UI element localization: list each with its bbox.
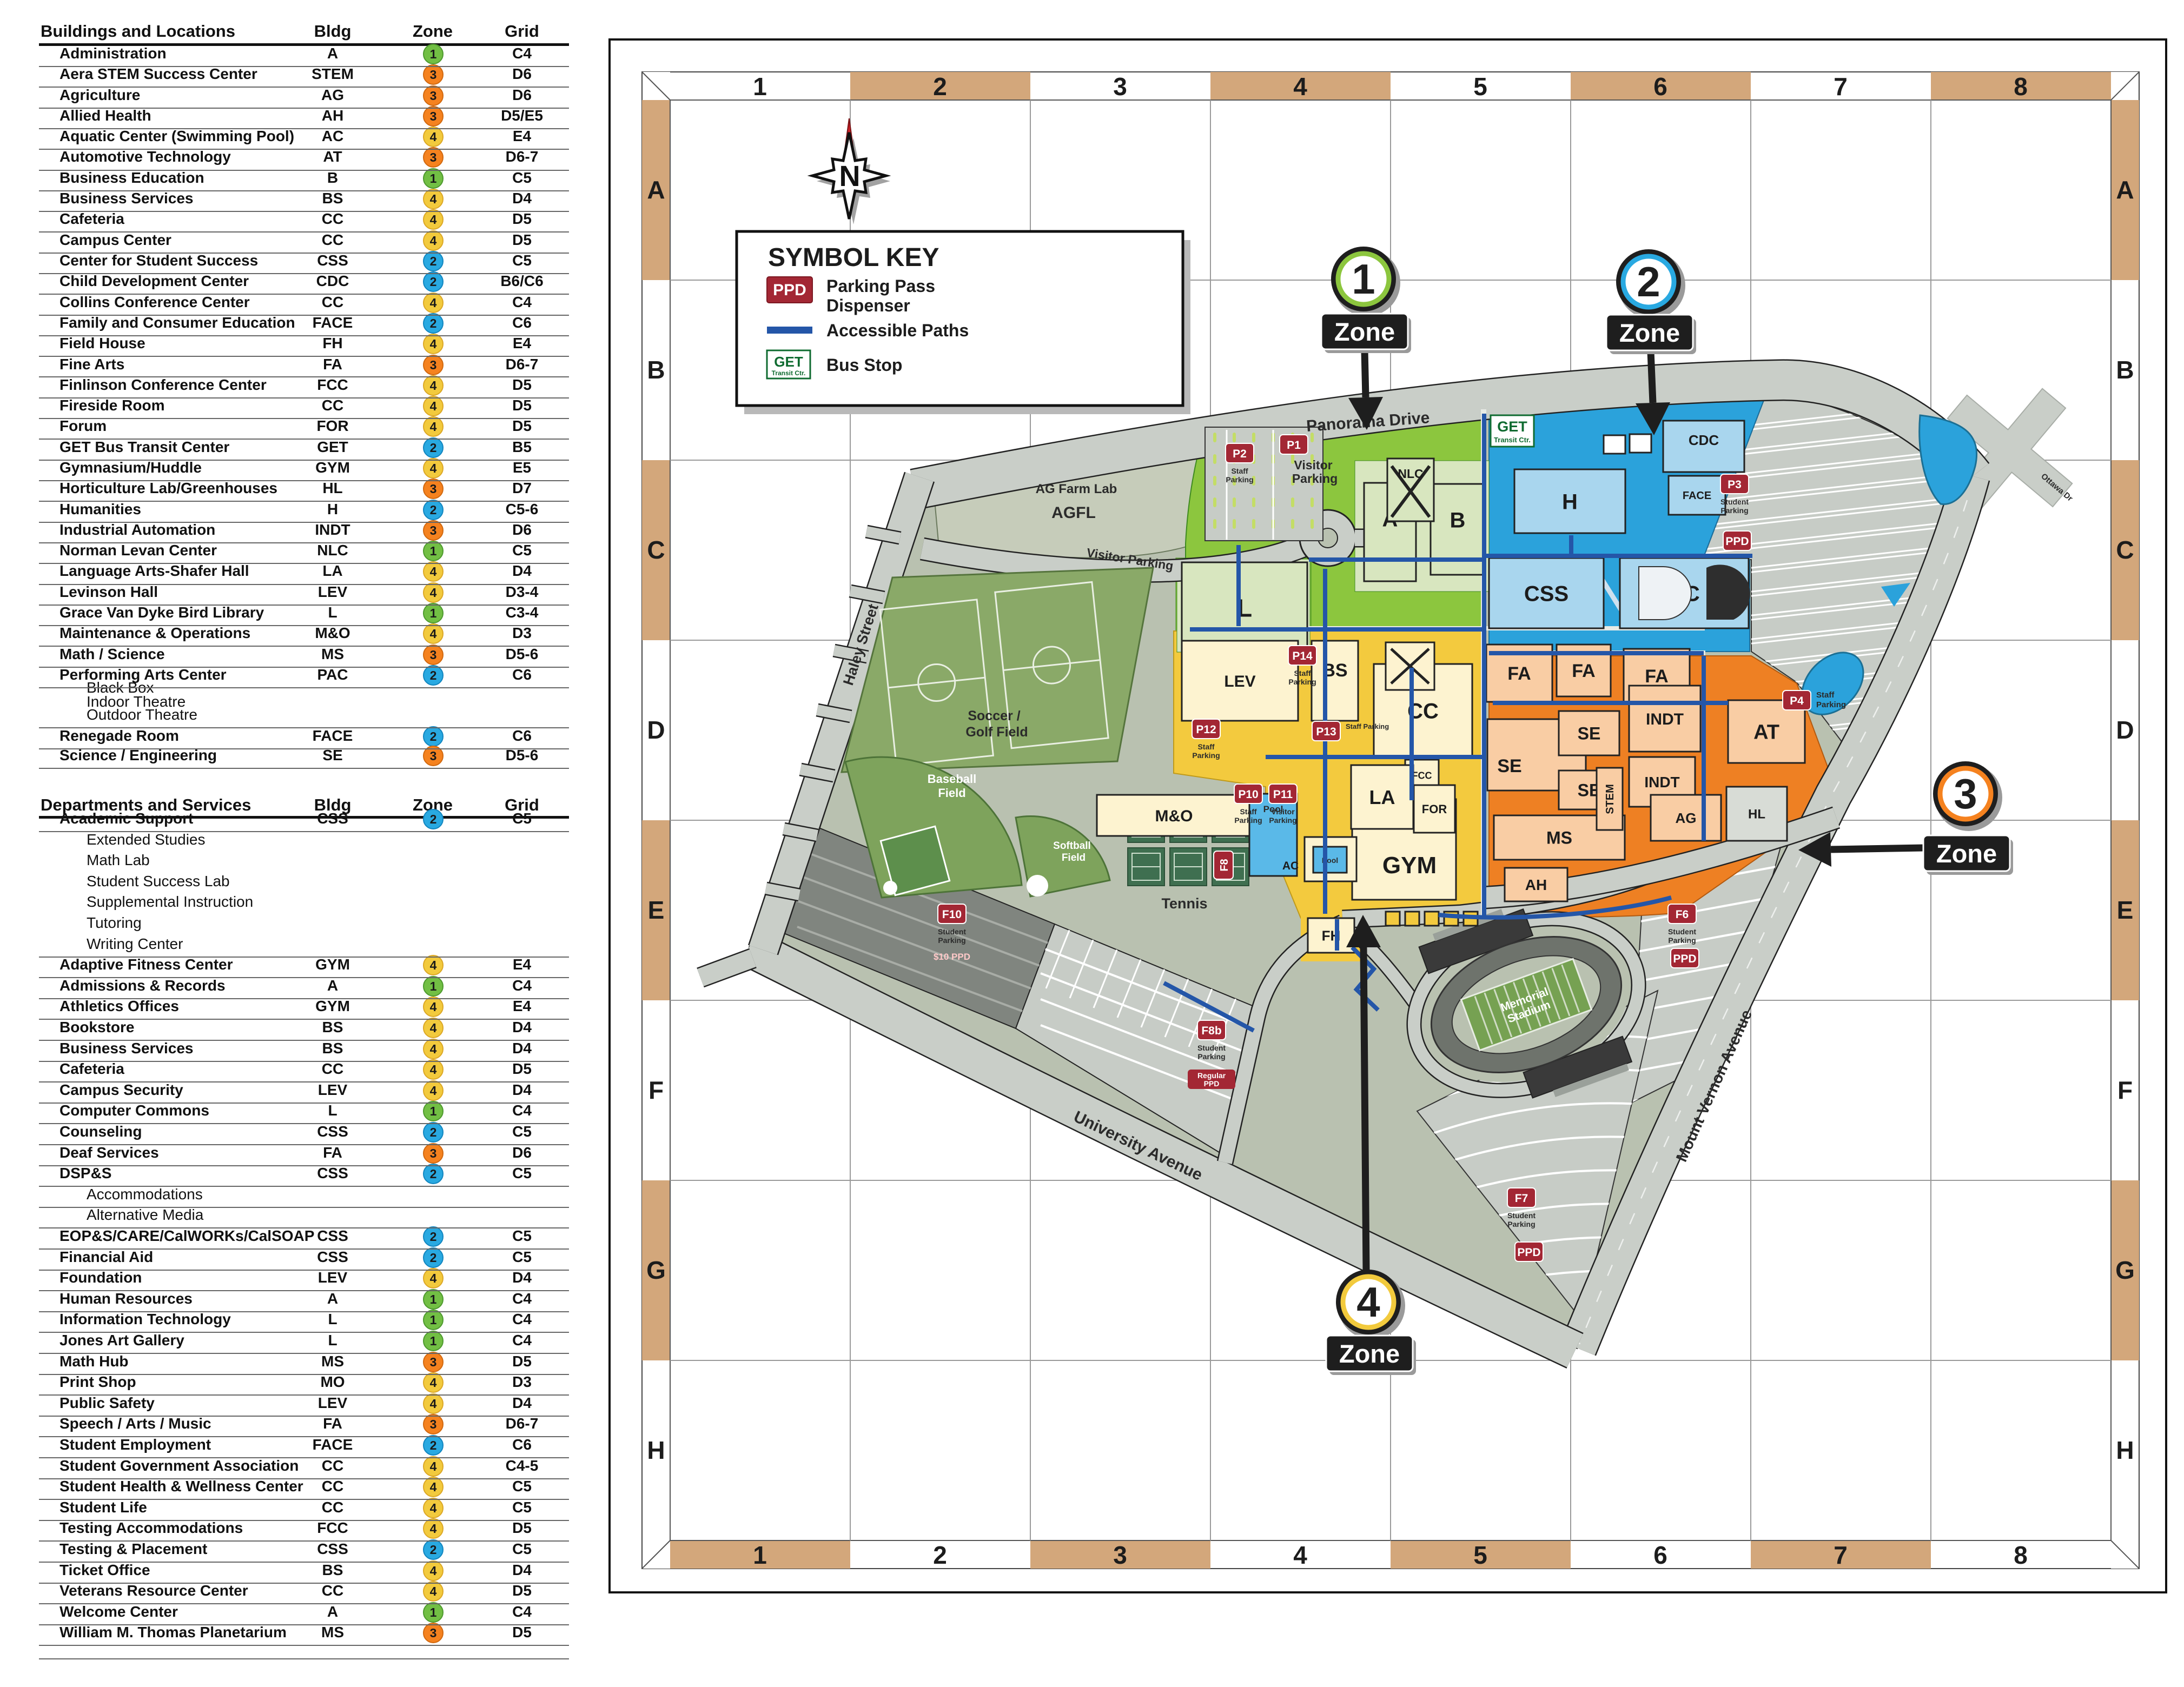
svg-text:GET: GET: [774, 354, 803, 370]
svg-text:INDT: INDT: [1646, 710, 1684, 728]
svg-text:FACE: FACE: [1683, 490, 1711, 502]
svg-text:PPD: PPD: [1204, 1079, 1220, 1088]
svg-text:E: E: [648, 896, 665, 924]
svg-text:F7: F7: [1515, 1192, 1528, 1205]
svg-text:Student: Student: [1720, 497, 1749, 506]
svg-text:INDT: INDT: [1644, 774, 1679, 791]
svg-text:PPD: PPD: [1673, 953, 1696, 965]
svg-text:Student: Student: [938, 927, 966, 936]
svg-text:Zone: Zone: [1339, 1339, 1400, 1368]
svg-text:5: 5: [1473, 72, 1487, 101]
svg-text:E: E: [2117, 896, 2134, 924]
svg-text:Student: Student: [1507, 1211, 1536, 1220]
svg-text:2: 2: [1637, 258, 1660, 305]
svg-text:Student: Student: [1668, 927, 1696, 936]
svg-text:F: F: [648, 1076, 664, 1104]
svg-text:D: D: [2116, 716, 2134, 744]
svg-text:C: C: [2116, 536, 2134, 564]
svg-text:Parking: Parking: [1197, 1052, 1225, 1061]
svg-text:STEM: STEM: [1604, 784, 1616, 814]
svg-text:Parking: Parking: [938, 936, 965, 945]
svg-text:GYM: GYM: [1382, 852, 1437, 879]
svg-text:Parking: Parking: [1226, 475, 1253, 484]
svg-text:Parking: Parking: [1269, 816, 1296, 825]
svg-text:FCC: FCC: [1412, 770, 1432, 781]
svg-text:Transit Ctr.: Transit Ctr.: [1494, 436, 1531, 444]
svg-text:PPD: PPD: [773, 281, 806, 299]
svg-text:Visitor: Visitor: [1294, 458, 1332, 472]
svg-text:GET: GET: [1497, 419, 1527, 435]
svg-text:A: A: [647, 176, 665, 204]
svg-text:AG Farm Lab: AG Farm Lab: [1036, 482, 1117, 496]
svg-text:Golf Field: Golf Field: [965, 725, 1028, 740]
svg-text:CDC: CDC: [1689, 432, 1719, 448]
svg-text:Field: Field: [938, 786, 965, 800]
svg-text:Staff: Staff: [1294, 669, 1311, 678]
svg-text:7: 7: [1834, 1541, 1848, 1569]
svg-text:8: 8: [2014, 72, 2028, 101]
svg-text:P1: P1: [1287, 439, 1301, 451]
svg-text:G: G: [646, 1256, 666, 1284]
svg-text:7: 7: [1834, 72, 1848, 101]
svg-text:B: B: [1450, 508, 1466, 532]
svg-text:Zone: Zone: [1619, 318, 1680, 347]
svg-text:Staff: Staff: [1197, 742, 1214, 751]
svg-text:F10: F10: [942, 908, 962, 921]
svg-text:1: 1: [1352, 255, 1375, 303]
svg-text:P11: P11: [1273, 788, 1293, 801]
svg-text:2: 2: [933, 1541, 947, 1569]
svg-text:M&O: M&O: [1155, 807, 1193, 825]
svg-text:P4: P4: [1790, 695, 1804, 707]
svg-text:Dispenser: Dispenser: [826, 296, 910, 315]
svg-text:4: 4: [1293, 1541, 1307, 1569]
svg-text:Baseball: Baseball: [928, 772, 977, 786]
svg-text:FA: FA: [1572, 661, 1595, 681]
svg-text:LA: LA: [1369, 786, 1395, 808]
svg-text:P2: P2: [1233, 448, 1247, 460]
svg-text:5: 5: [1473, 1541, 1487, 1569]
svg-text:P10: P10: [1238, 788, 1258, 801]
svg-text:Soccer /: Soccer /: [968, 708, 1020, 723]
svg-text:Regular: Regular: [1197, 1071, 1226, 1080]
svg-text:2: 2: [933, 72, 947, 101]
svg-text:Parking: Parking: [1507, 1220, 1535, 1228]
svg-text:Field: Field: [1062, 852, 1086, 864]
svg-text:1: 1: [753, 72, 767, 101]
svg-text:AH: AH: [1525, 876, 1547, 893]
svg-text:F: F: [2117, 1076, 2133, 1104]
svg-text:N: N: [839, 160, 861, 192]
svg-text:3: 3: [1113, 72, 1127, 101]
svg-text:SE: SE: [1497, 756, 1521, 776]
svg-text:F8: F8: [1219, 859, 1230, 871]
svg-text:Parking: Parking: [1816, 700, 1846, 709]
svg-text:F8b: F8b: [1201, 1025, 1221, 1037]
svg-text:6: 6: [1653, 72, 1667, 101]
svg-text:H: H: [1562, 490, 1578, 514]
svg-text:Staff: Staff: [1240, 807, 1256, 816]
svg-text:1: 1: [753, 1541, 767, 1569]
svg-text:LEV: LEV: [1224, 673, 1255, 690]
svg-text:NLC: NLC: [1398, 467, 1423, 481]
svg-text:4: 4: [1293, 72, 1307, 101]
svg-text:FOR: FOR: [1422, 802, 1447, 816]
svg-text:MS: MS: [1546, 828, 1572, 848]
svg-text:H: H: [2116, 1436, 2134, 1464]
svg-text:AC: AC: [1282, 860, 1299, 872]
svg-text:Parking: Parking: [1292, 471, 1338, 486]
svg-text:FA: FA: [1507, 663, 1531, 684]
svg-text:Parking: Parking: [1192, 751, 1220, 760]
svg-text:8: 8: [2014, 1541, 2028, 1569]
svg-text:Parking: Parking: [1234, 816, 1262, 825]
svg-text:Tennis: Tennis: [1161, 895, 1207, 912]
svg-text:HL: HL: [1748, 807, 1765, 822]
svg-text:SYMBOL KEY: SYMBOL KEY: [768, 243, 939, 272]
svg-text:P14: P14: [1292, 650, 1313, 662]
svg-text:3: 3: [1113, 1541, 1127, 1569]
svg-text:$10 PPD: $10 PPD: [934, 952, 970, 962]
svg-text:4: 4: [1356, 1278, 1380, 1326]
svg-text:H: H: [647, 1436, 665, 1464]
svg-text:P3: P3: [1728, 479, 1742, 491]
svg-text:C: C: [647, 536, 665, 564]
svg-text:Parking: Parking: [1668, 936, 1696, 945]
svg-text:Zone: Zone: [1334, 317, 1395, 346]
svg-text:Parking Pass: Parking Pass: [826, 276, 935, 296]
svg-text:D: D: [647, 716, 665, 744]
svg-text:PPD: PPD: [1725, 535, 1749, 548]
svg-text:Staff: Staff: [1231, 467, 1248, 475]
svg-text:Accessible Paths: Accessible Paths: [826, 321, 969, 340]
svg-text:Visitor: Visitor: [1271, 807, 1295, 816]
svg-text:G: G: [2115, 1256, 2135, 1284]
svg-text:B: B: [647, 356, 665, 384]
svg-text:F6: F6: [1676, 908, 1689, 921]
svg-text:Parking: Parking: [1288, 678, 1316, 686]
svg-text:Staff: Staff: [1816, 690, 1835, 700]
svg-text:CSS: CSS: [1524, 582, 1568, 606]
svg-text:Parking: Parking: [1720, 506, 1748, 515]
svg-text:Softball: Softball: [1053, 840, 1091, 852]
svg-text:PPD: PPD: [1517, 1246, 1540, 1259]
svg-text:AGFL: AGFL: [1051, 504, 1096, 522]
svg-text:P13: P13: [1316, 726, 1336, 738]
svg-text:SE: SE: [1578, 724, 1601, 743]
svg-text:Zone: Zone: [1936, 839, 1997, 868]
svg-text:AT: AT: [1753, 721, 1779, 744]
svg-text:Transit Ctr.: Transit Ctr.: [772, 369, 806, 377]
svg-text:FA: FA: [1645, 666, 1668, 687]
svg-text:3: 3: [1954, 770, 1977, 818]
svg-text:AG: AG: [1676, 810, 1697, 826]
svg-text:P12: P12: [1196, 723, 1216, 736]
svg-text:Student: Student: [1197, 1044, 1226, 1052]
svg-text:A: A: [2116, 176, 2134, 204]
svg-text:6: 6: [1653, 1541, 1667, 1569]
svg-text:Bus Stop: Bus Stop: [826, 355, 902, 375]
svg-text:B: B: [2116, 356, 2134, 384]
svg-text:Staff Parking: Staff Parking: [1346, 722, 1389, 730]
